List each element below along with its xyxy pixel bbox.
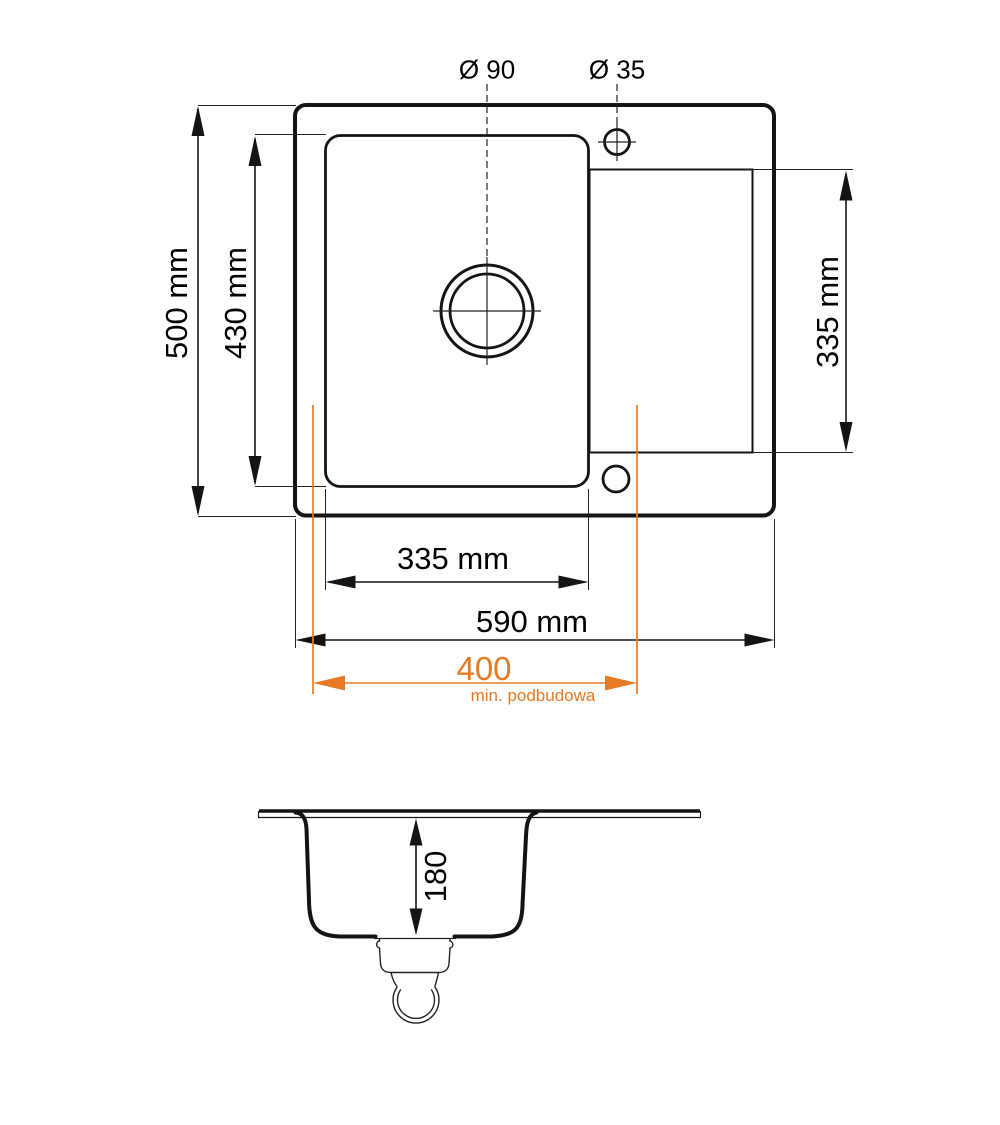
- svg-text:Ø 90: Ø 90: [459, 55, 515, 85]
- svg-text:min. podbudowa: min. podbudowa: [471, 686, 596, 705]
- svg-text:Ø 35: Ø 35: [589, 55, 645, 85]
- svg-text:400: 400: [456, 650, 511, 687]
- svg-text:590 mm: 590 mm: [476, 604, 588, 639]
- svg-text:500 mm: 500 mm: [159, 247, 194, 359]
- svg-text:335 mm: 335 mm: [397, 541, 509, 576]
- svg-text:430 mm: 430 mm: [218, 247, 253, 359]
- svg-text:180: 180: [418, 851, 453, 903]
- svg-text:335 mm: 335 mm: [810, 256, 845, 368]
